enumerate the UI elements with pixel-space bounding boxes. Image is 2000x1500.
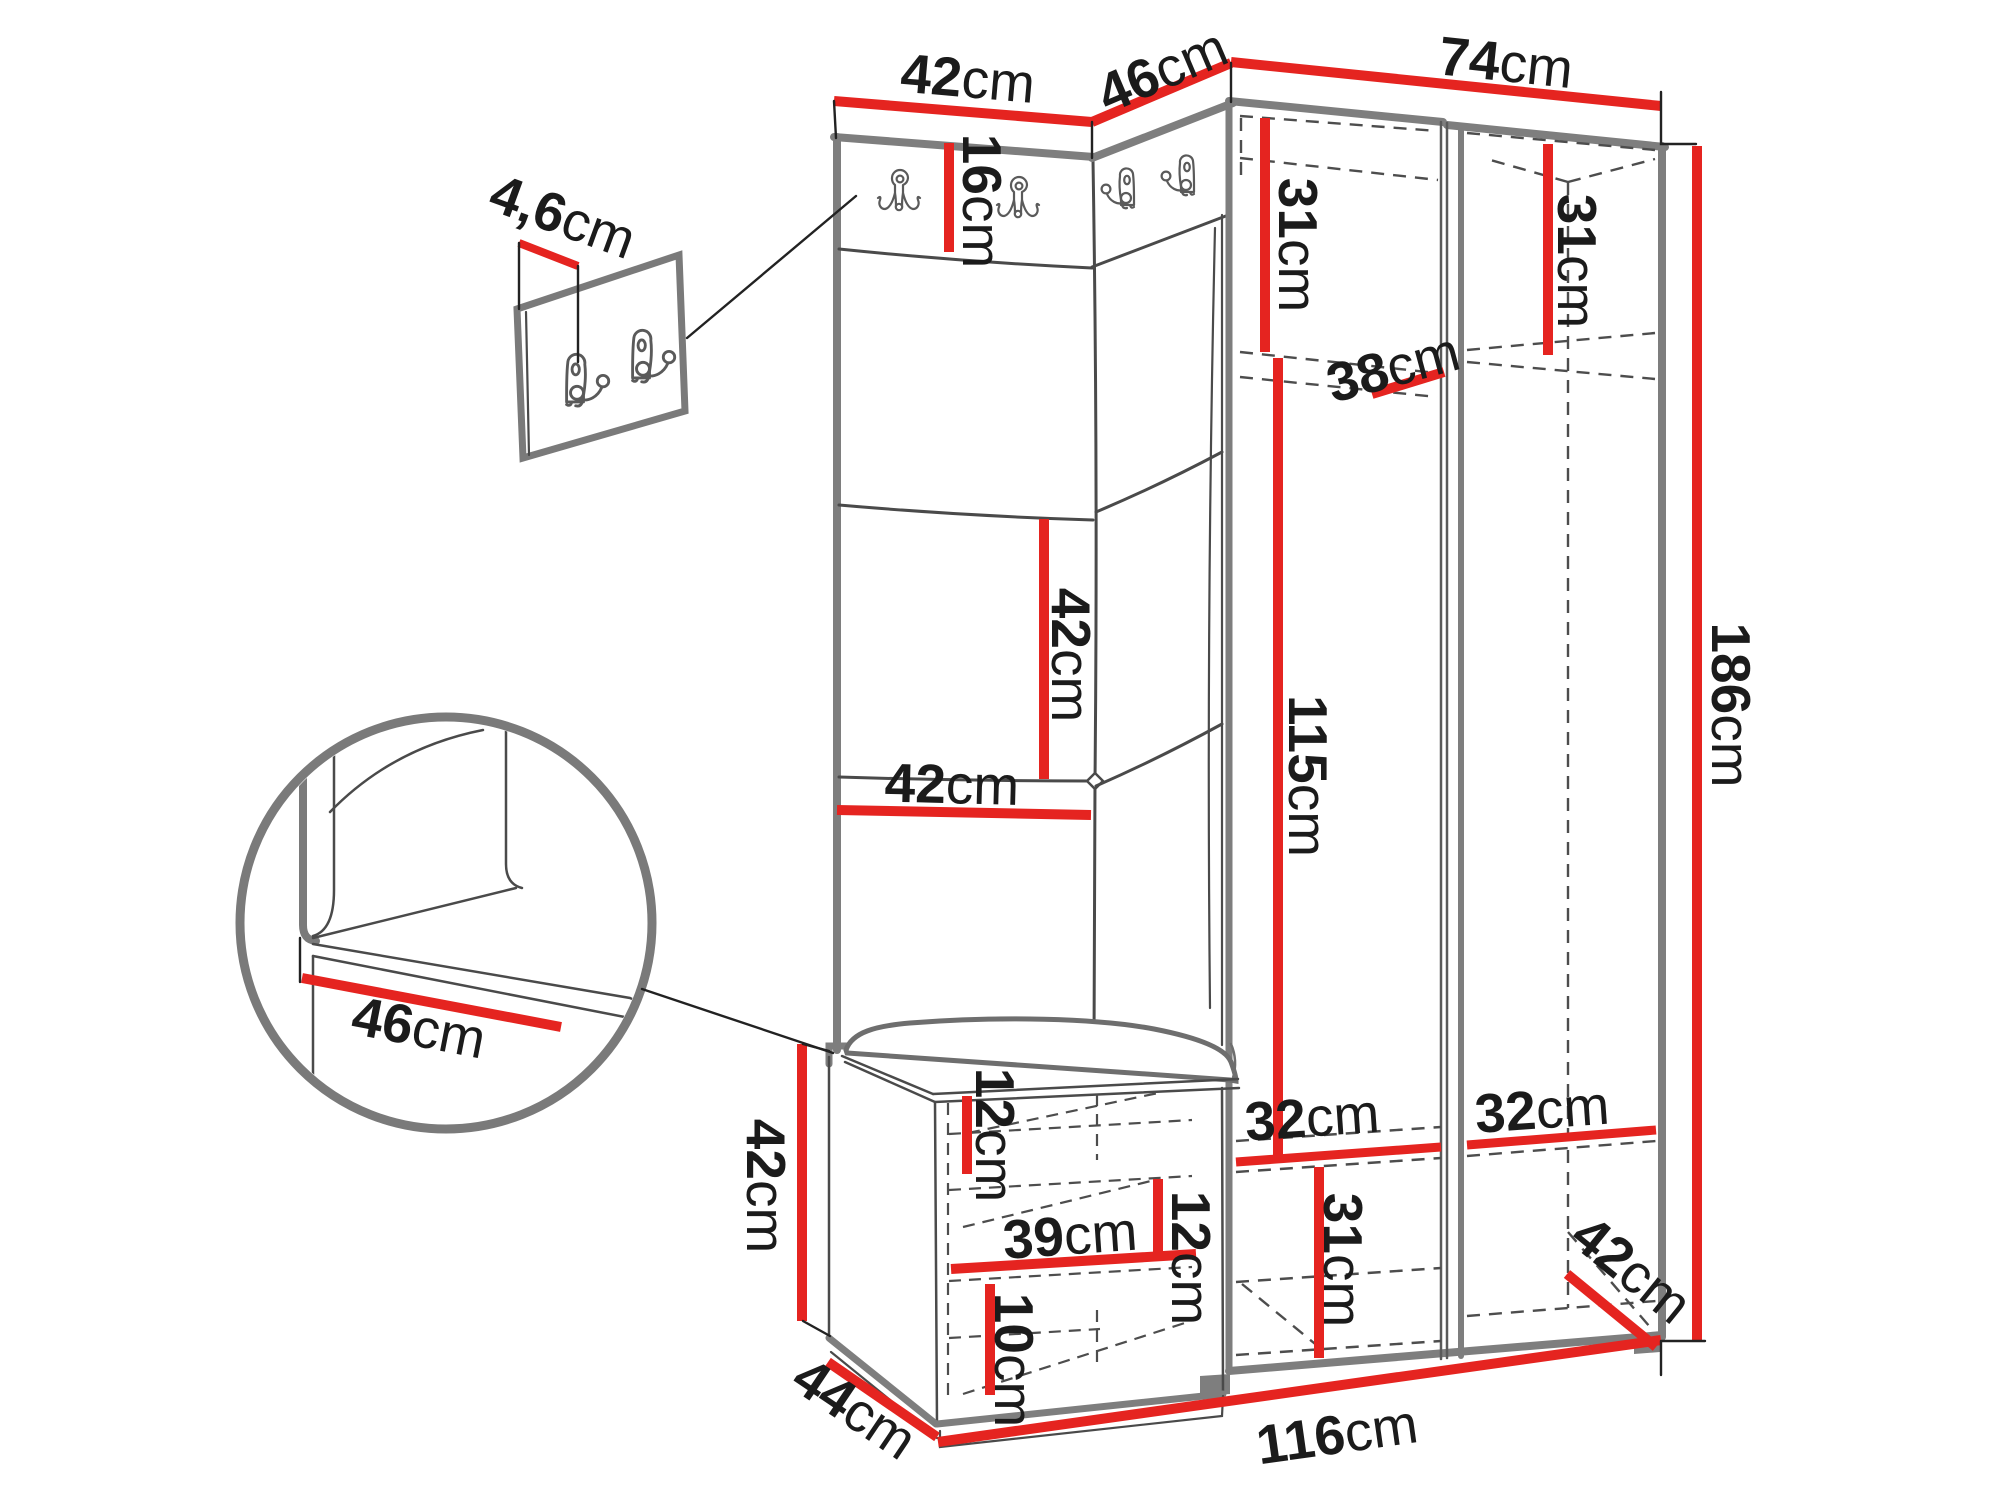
svg-text:42cm: 42cm (1040, 588, 1102, 723)
svg-text:31cm: 31cm (1267, 178, 1329, 313)
svg-text:39cm: 39cm (1001, 1200, 1140, 1271)
svg-text:10cm: 10cm (983, 1293, 1045, 1428)
svg-text:186cm: 186cm (1700, 622, 1762, 787)
svg-text:42cm: 42cm (898, 42, 1037, 115)
svg-text:42cm: 42cm (735, 1119, 797, 1254)
svg-text:12cm: 12cm (964, 1068, 1026, 1203)
svg-text:42cm: 42cm (884, 751, 1020, 816)
svg-text:32cm: 32cm (1243, 1082, 1382, 1153)
svg-text:31cm: 31cm (1546, 194, 1608, 329)
svg-text:31cm: 31cm (1312, 1193, 1374, 1328)
svg-text:16cm: 16cm (951, 134, 1013, 269)
svg-text:12cm: 12cm (1160, 1191, 1222, 1326)
svg-text:115cm: 115cm (1277, 695, 1339, 857)
svg-text:32cm: 32cm (1473, 1074, 1612, 1145)
